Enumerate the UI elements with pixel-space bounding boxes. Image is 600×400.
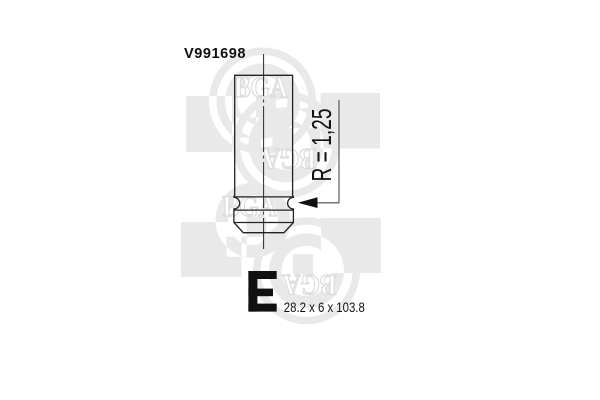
svg-text:V991698: V991698 xyxy=(184,46,246,62)
svg-text:28.2 x 6 x 103.8: 28.2 x 6 x 103.8 xyxy=(284,300,365,316)
svg-text:BGA: BGA xyxy=(223,190,277,223)
svg-text:R = 1,25: R = 1,25 xyxy=(306,109,337,182)
